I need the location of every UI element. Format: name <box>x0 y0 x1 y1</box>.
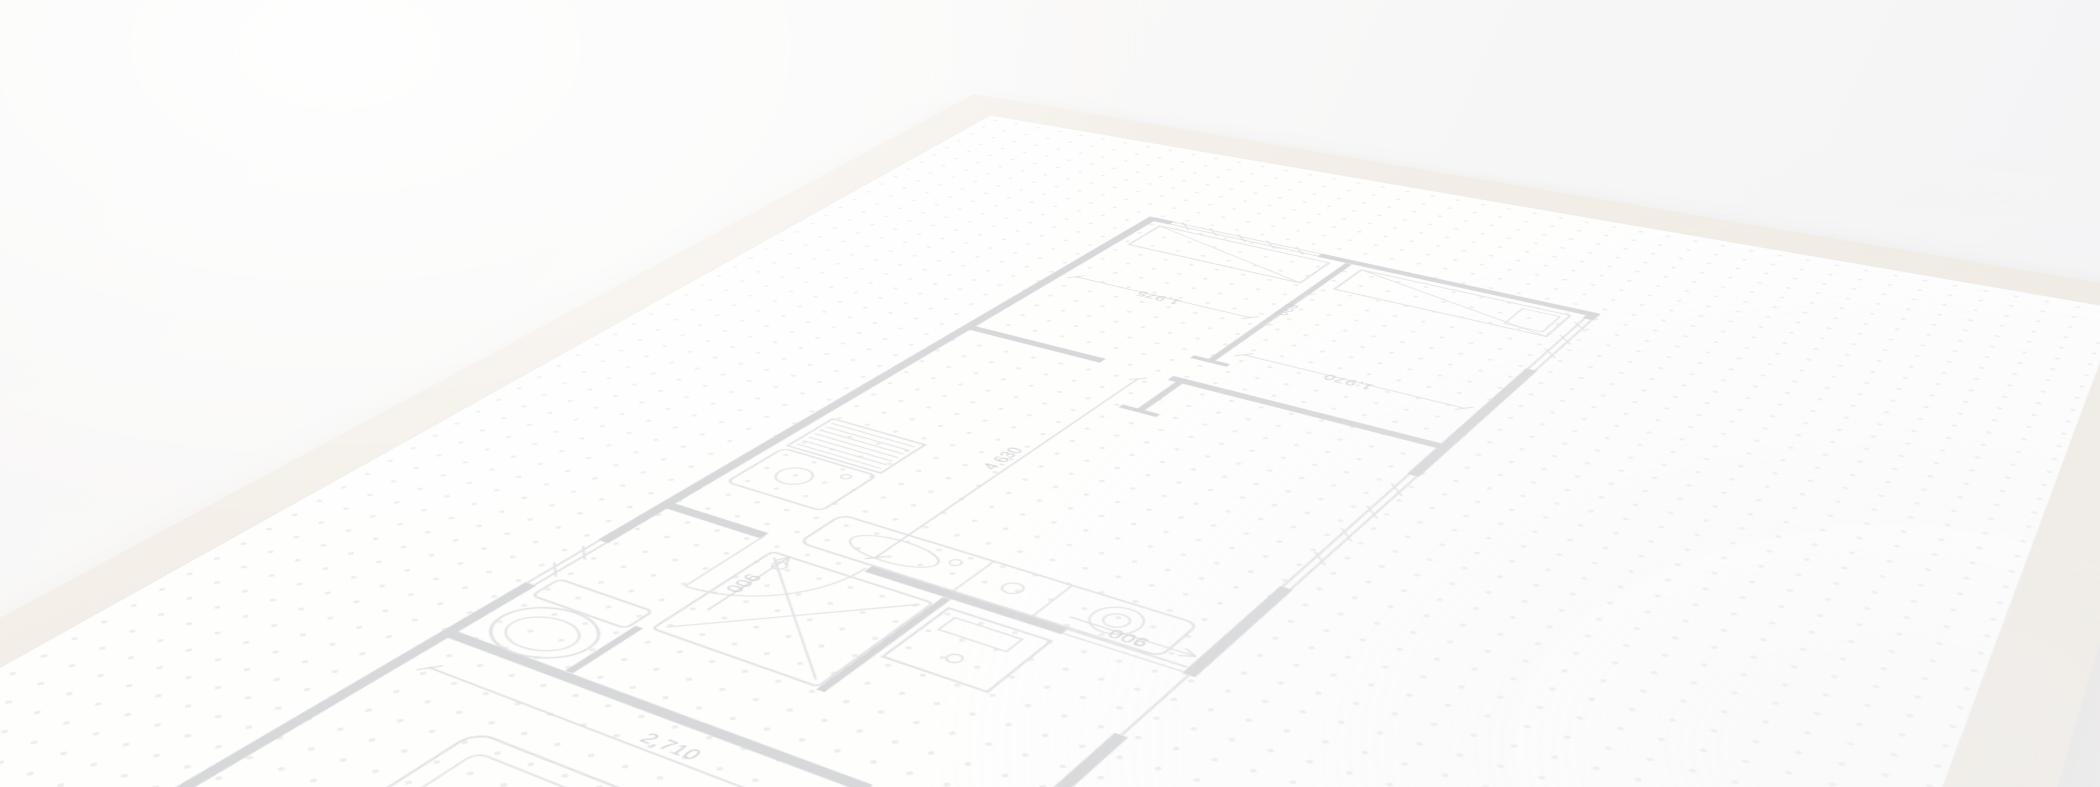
tilted-sheet-stack: 1,975 1,970 820 <box>0 115 2100 787</box>
dimension-living-length: 4,630 <box>848 371 1146 562</box>
dimension-label: 1,970 <box>1320 372 1377 391</box>
sliding-door-track <box>991 629 1195 735</box>
kitchen-range <box>788 419 925 473</box>
dimension-bath-door-width: 900 <box>693 552 796 612</box>
window <box>1277 473 1422 591</box>
dimension-bedroom-a-width: 1,975 <box>1065 273 1259 323</box>
toilet <box>465 579 652 670</box>
dimension-label: 900 <box>719 571 764 594</box>
window <box>1168 221 1323 258</box>
door-arc <box>685 536 866 621</box>
window <box>523 539 611 587</box>
dimension-label: 1,975 <box>1133 289 1185 305</box>
floor-plan-photo-scene: 1,975 1,970 820 <box>0 0 2100 787</box>
